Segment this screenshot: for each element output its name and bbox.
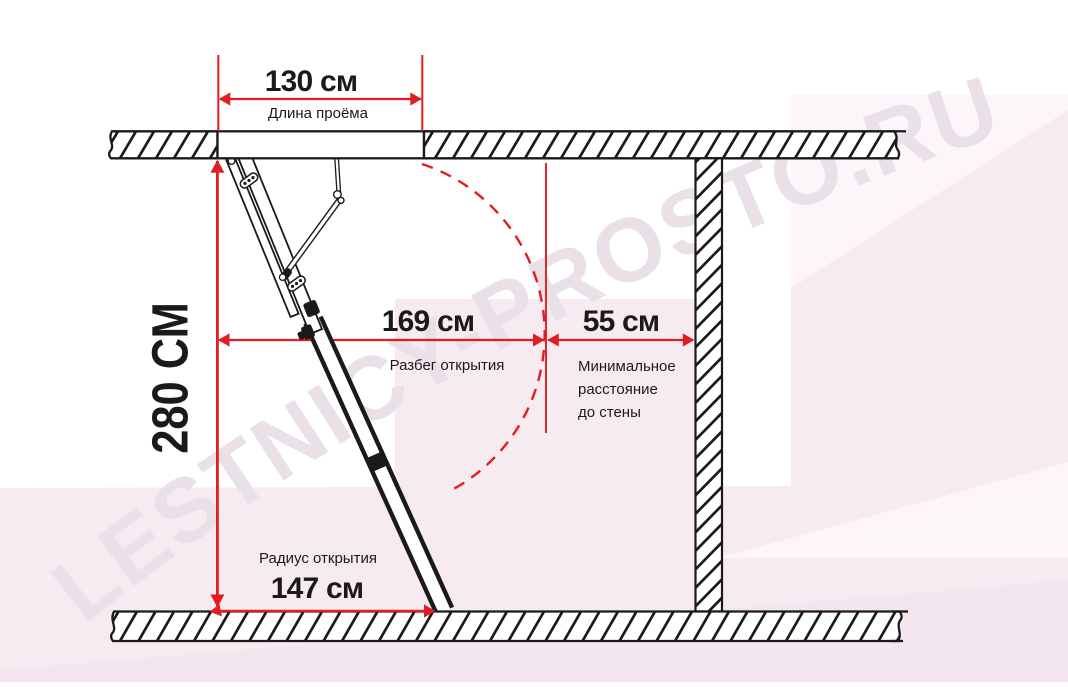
svg-text:Разбег открытия: Разбег открытия [390, 357, 505, 374]
svg-text:Длина проёма: Длина проёма [268, 105, 369, 122]
svg-text:169 см: 169 см [382, 305, 474, 338]
svg-text:130 см: 130 см [265, 65, 357, 98]
svg-text:147 см: 147 см [271, 572, 363, 605]
svg-text:55 см: 55 см [583, 305, 660, 338]
svg-text:расстояние: расстояние [578, 381, 658, 398]
svg-text:Минимальное: Минимальное [578, 358, 676, 375]
svg-text:до стены: до стены [578, 404, 641, 421]
svg-text:280 СМ: 280 СМ [142, 302, 199, 454]
svg-text:Радиус открытия: Радиус открытия [259, 550, 377, 567]
